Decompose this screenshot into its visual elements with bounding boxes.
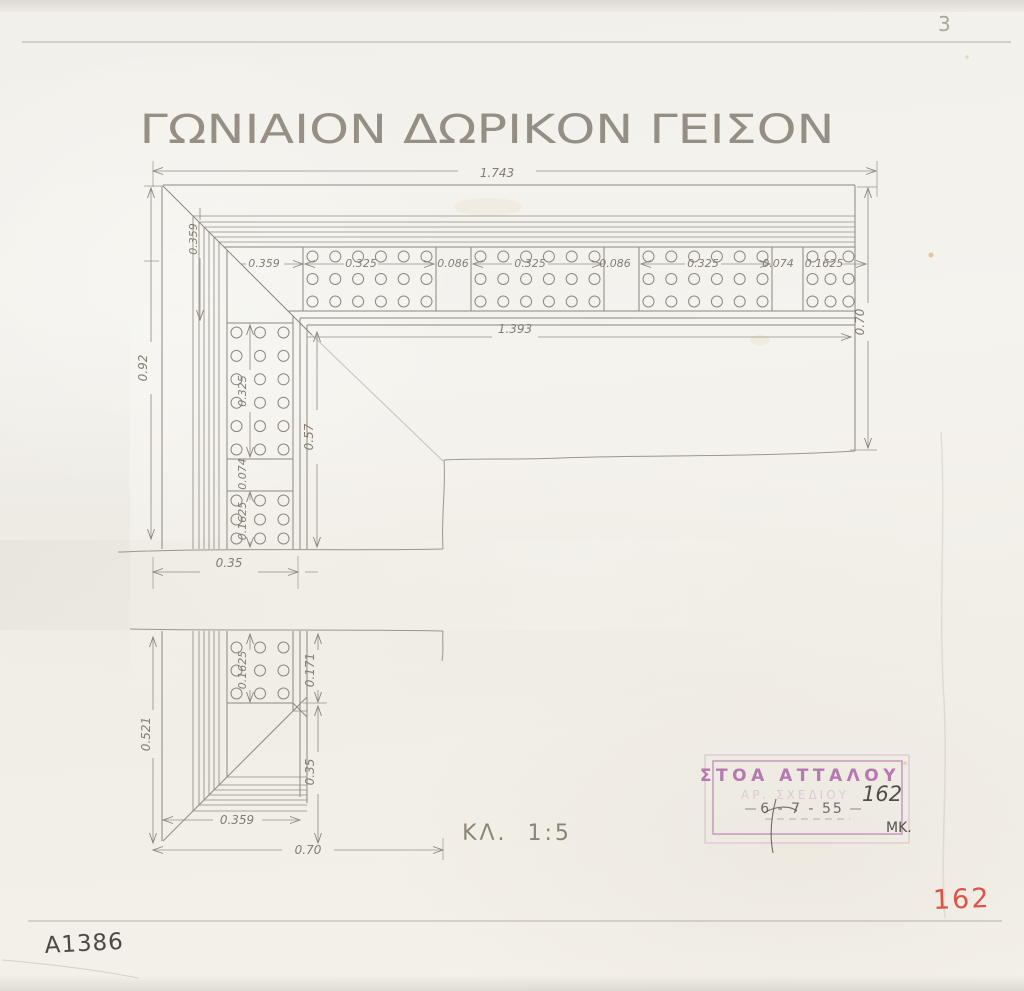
soffit-inner-edge-top <box>300 318 855 325</box>
gutta-circle <box>278 350 289 361</box>
gutta-circle <box>475 274 486 285</box>
dim-total-width: 1.743 <box>480 166 514 180</box>
gutta-circle <box>255 421 266 432</box>
gutta-circle <box>757 274 768 285</box>
gutta-circle <box>231 444 242 455</box>
gutta-circle <box>255 397 266 408</box>
gutta-circle <box>843 274 854 285</box>
gutta-circle <box>666 296 677 307</box>
gutta-circle <box>807 296 818 307</box>
dim-left-mutule-3: 0.1625 <box>236 651 249 690</box>
dim-top-mutule-1: 0.325 <box>345 257 377 270</box>
sheet-number-red: 162 <box>932 883 991 916</box>
gutta-circle <box>353 274 364 285</box>
gutta-circle <box>255 642 266 653</box>
gutta-circle <box>475 251 486 262</box>
gutta-circle <box>825 296 836 307</box>
gutta-circle <box>666 251 677 262</box>
dim-lower-inner: 0.35 <box>303 759 317 786</box>
gutta-circle <box>375 251 386 262</box>
dim-top-gap-2: 0.086 <box>599 257 631 270</box>
soffit-inner-edge-left <box>300 318 307 803</box>
left-moulding-lines-upper <box>193 216 219 549</box>
gutta-circle <box>475 296 486 307</box>
stamp-subtitle-faint: ΑΡ. ΣΧΕΔΙΟΥ <box>741 788 849 802</box>
gutta-circle <box>521 274 532 285</box>
break-line-lower <box>130 629 443 631</box>
gutta-circle <box>278 514 289 525</box>
gutta-circle <box>643 296 654 307</box>
dim-left-offset: 0.359 <box>187 223 200 255</box>
gutta-circle <box>757 296 768 307</box>
gutta-circle <box>843 251 854 262</box>
left-moulding-lines-lower <box>193 631 219 811</box>
gutta-circle <box>734 274 745 285</box>
gutta-circle <box>255 327 266 338</box>
gutta-circle <box>421 251 432 262</box>
dim-top-mutule-3: 0.325 <box>687 257 719 270</box>
gutta-circle <box>255 533 266 544</box>
dim-soffit-length: 1.393 <box>498 322 532 336</box>
gutta-circle <box>825 274 836 285</box>
gutta-circle <box>278 327 289 338</box>
gutta-circle <box>711 296 722 307</box>
gutta-circle <box>278 533 289 544</box>
dim-left-mutule-1: 0.325 <box>236 375 249 407</box>
architectural-drawing-svg: 3 ΓΩΝΙΑΙΟΝ ΔΩΡΙΚΟΝ ΓΕΙΣΟΝ <box>0 0 1024 991</box>
dim-left-height-lower: 0.521 <box>139 717 153 751</box>
dim-bottom-depth: 0.70 <box>295 843 322 857</box>
gutta-circle <box>255 688 266 699</box>
gutta-circle <box>843 296 854 307</box>
gutta-circle <box>398 296 409 307</box>
dim-right-depth: 0.70 <box>853 308 867 335</box>
gutta-circle <box>278 642 289 653</box>
gutta-circle <box>255 444 266 455</box>
gutta-circle <box>589 296 600 307</box>
gutta-circle <box>278 665 289 676</box>
gutta-circle <box>734 296 745 307</box>
gutta-circle <box>498 296 509 307</box>
stamp-initials: ΜΚ. <box>886 820 912 836</box>
dim-left-mutule-2: 0.1625 <box>236 502 249 541</box>
gutta-circle <box>231 327 242 338</box>
dim-soffit-depth: 0.57 <box>302 423 316 450</box>
gutta-circle <box>353 296 364 307</box>
gutta-circle <box>278 397 289 408</box>
gutta-circle <box>278 495 289 506</box>
gutta-circle <box>498 251 509 262</box>
gutta-circle <box>398 251 409 262</box>
gutta-circle <box>543 274 554 285</box>
gutta-circle <box>521 296 532 307</box>
top-moulding-lines <box>193 216 855 242</box>
gutta-circle <box>231 350 242 361</box>
broken-edge <box>442 631 443 661</box>
dim-top-mutule-2: 0.325 <box>514 257 546 270</box>
dim-inner-step: 0.171 <box>303 653 317 687</box>
gutta-circle <box>643 274 654 285</box>
page-number: 3 <box>938 12 951 36</box>
gutta-circle <box>255 665 266 676</box>
gutta-circle <box>734 251 745 262</box>
dim-bottom-offset: 0.359 <box>220 813 254 827</box>
gutta-circle <box>278 421 289 432</box>
scale-label: ΚΛ. 1:5 <box>462 821 572 846</box>
dim-left-height-upper: 0.92 <box>136 355 150 382</box>
gutta-circle <box>421 274 432 285</box>
gutta-circle <box>398 274 409 285</box>
gutta-circle <box>307 296 318 307</box>
gutta-circle <box>278 444 289 455</box>
gutta-circle <box>307 274 318 285</box>
stamp-drawing-number: 162 <box>862 782 902 806</box>
dim-top-gap-1: 0.086 <box>437 257 469 270</box>
dim-top-mutule-4: 0.1625 <box>805 257 844 270</box>
catalog-number: A1386 <box>44 929 125 959</box>
gutta-circle <box>711 274 722 285</box>
miter-construction-line <box>312 335 443 461</box>
gutta-circle <box>643 251 654 262</box>
dim-top-offset: 0.359 <box>248 257 280 270</box>
gutta-circle <box>566 274 577 285</box>
broken-edge <box>443 460 445 549</box>
gutta-circle <box>375 296 386 307</box>
gutta-circle <box>543 296 554 307</box>
broken-edge <box>444 451 855 460</box>
gutta-circle <box>278 374 289 385</box>
gutta-circle <box>255 350 266 361</box>
gutta-circle <box>255 514 266 525</box>
gutta-circle <box>330 296 341 307</box>
gutta-circle <box>807 274 818 285</box>
gutta-circle <box>255 374 266 385</box>
gutta-circle <box>278 688 289 699</box>
dim-break-width: 0.35 <box>216 556 243 570</box>
top-mutule-separators <box>303 247 803 311</box>
gutta-circle <box>666 274 677 285</box>
top-corner-miter-diagonal <box>163 186 312 335</box>
gutta-circle <box>307 251 318 262</box>
dimension-labels: 1.743 0.359 0.325 0.086 0.325 0.086 0.32… <box>136 166 867 857</box>
dim-left-gap-1: 0.074 <box>236 458 249 490</box>
gutta-circle <box>566 251 577 262</box>
gutta-circle <box>231 421 242 432</box>
gutta-circle <box>255 495 266 506</box>
gutta-circle <box>330 251 341 262</box>
stoa-attalou-stamp: ΣΤΟΑ ΑΤΤΑΛΟΥ ΑΡ. ΣΧΕΔΙΟΥ 162 6 - 7 - 55 … <box>700 755 912 853</box>
dim-top-gap-3: 0.074 <box>762 257 794 270</box>
gutta-circle <box>421 296 432 307</box>
page-title: ΓΩΝΙΑΙΟΝ ΔΩΡΙΚΟΝ ΓΕΙΣΟΝ <box>140 107 835 153</box>
gutta-circle <box>689 274 700 285</box>
gutta-circle <box>498 274 509 285</box>
gutta-circle <box>589 274 600 285</box>
gutta-circle <box>330 274 341 285</box>
geison-plan-lines <box>118 185 855 841</box>
gutta-circle <box>566 296 577 307</box>
bottom-moulding-lines <box>193 711 307 811</box>
gutta-circle <box>375 274 386 285</box>
break-line-upper <box>118 549 443 552</box>
gutta-circle <box>689 296 700 307</box>
